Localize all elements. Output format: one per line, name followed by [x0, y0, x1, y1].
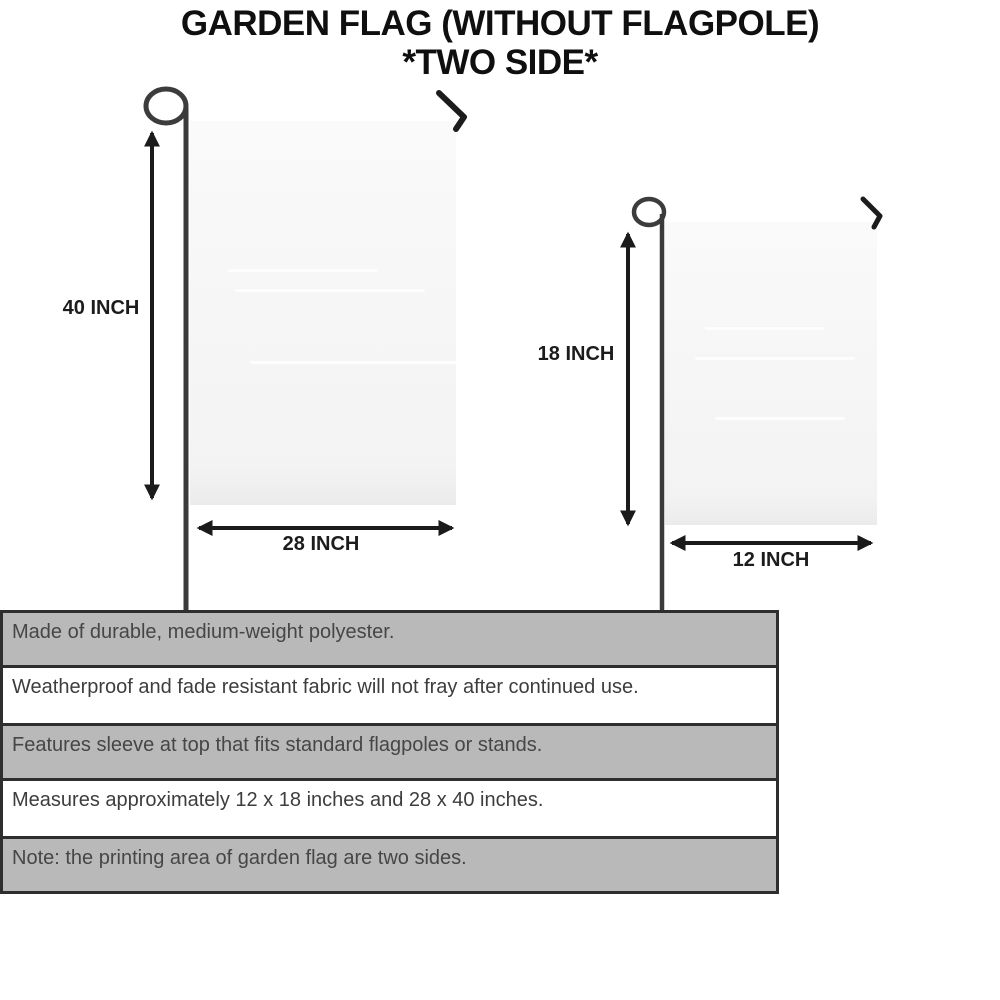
- page-title-line2: *TWO SIDE*: [0, 43, 1000, 82]
- page-title: GARDEN FLAG (WITHOUT FLAGPOLE) *TWO SIDE…: [0, 4, 1000, 82]
- large-flag-height-label: 40 INCH: [46, 297, 156, 320]
- feature-list: Made of durable, medium-weight polyester…: [0, 610, 779, 894]
- fabric-crease: [235, 289, 425, 292]
- feature-row-weatherproof: Weatherproof and fade resistant fabric w…: [0, 665, 779, 726]
- fabric-crease: [705, 327, 825, 330]
- feature-row-material: Made of durable, medium-weight polyester…: [0, 610, 779, 668]
- feature-row-sleeve: Features sleeve at top that fits standar…: [0, 723, 779, 781]
- fabric-crease: [695, 357, 855, 360]
- fabric-crease: [715, 417, 845, 420]
- large-flag-width-label: 28 INCH: [246, 533, 396, 556]
- large-flag-fabric: [190, 121, 456, 505]
- page-title-line1: GARDEN FLAG (WITHOUT FLAGPOLE): [0, 4, 1000, 43]
- feature-row-measures: Measures approximately 12 x 18 inches an…: [0, 778, 779, 839]
- small-flagpole-icon: [634, 199, 664, 610]
- garden-flag-size-guide: GARDEN FLAG (WITHOUT FLAGPOLE) *TWO SIDE…: [0, 0, 1000, 1000]
- small-flag-height-label: 18 INCH: [511, 343, 641, 366]
- fabric-crease: [228, 269, 378, 272]
- small-flag-fabric: [665, 222, 877, 525]
- fabric-crease: [250, 361, 460, 364]
- large-flagpole-icon: [146, 89, 186, 610]
- feature-row-note: Note: the printing area of garden flag a…: [0, 836, 779, 894]
- small-flag-width-label: 12 INCH: [696, 549, 846, 572]
